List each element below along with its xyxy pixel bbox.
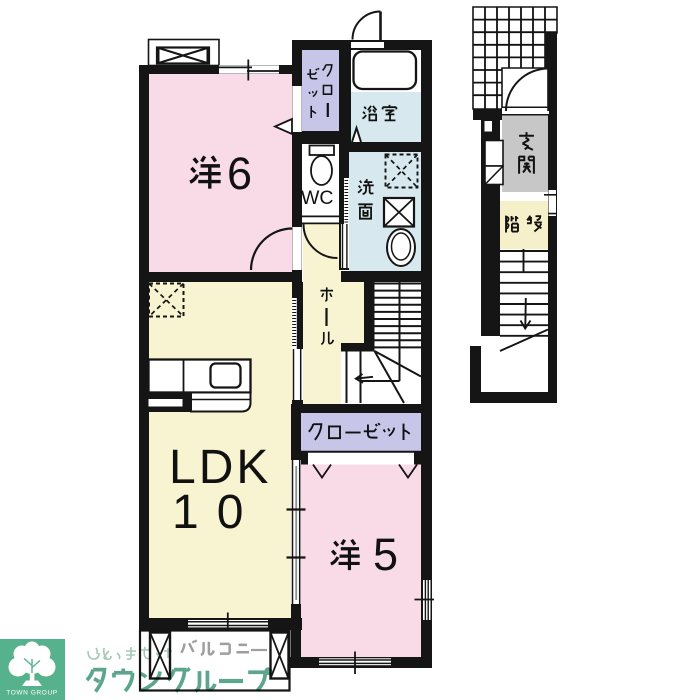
svg-text:10: 10 xyxy=(172,486,261,539)
svg-text:6: 6 xyxy=(227,148,252,199)
svg-text:5: 5 xyxy=(373,529,398,580)
svg-text:TOWN GROUP: TOWN GROUP xyxy=(6,690,57,697)
svg-text:WC: WC xyxy=(301,187,334,209)
